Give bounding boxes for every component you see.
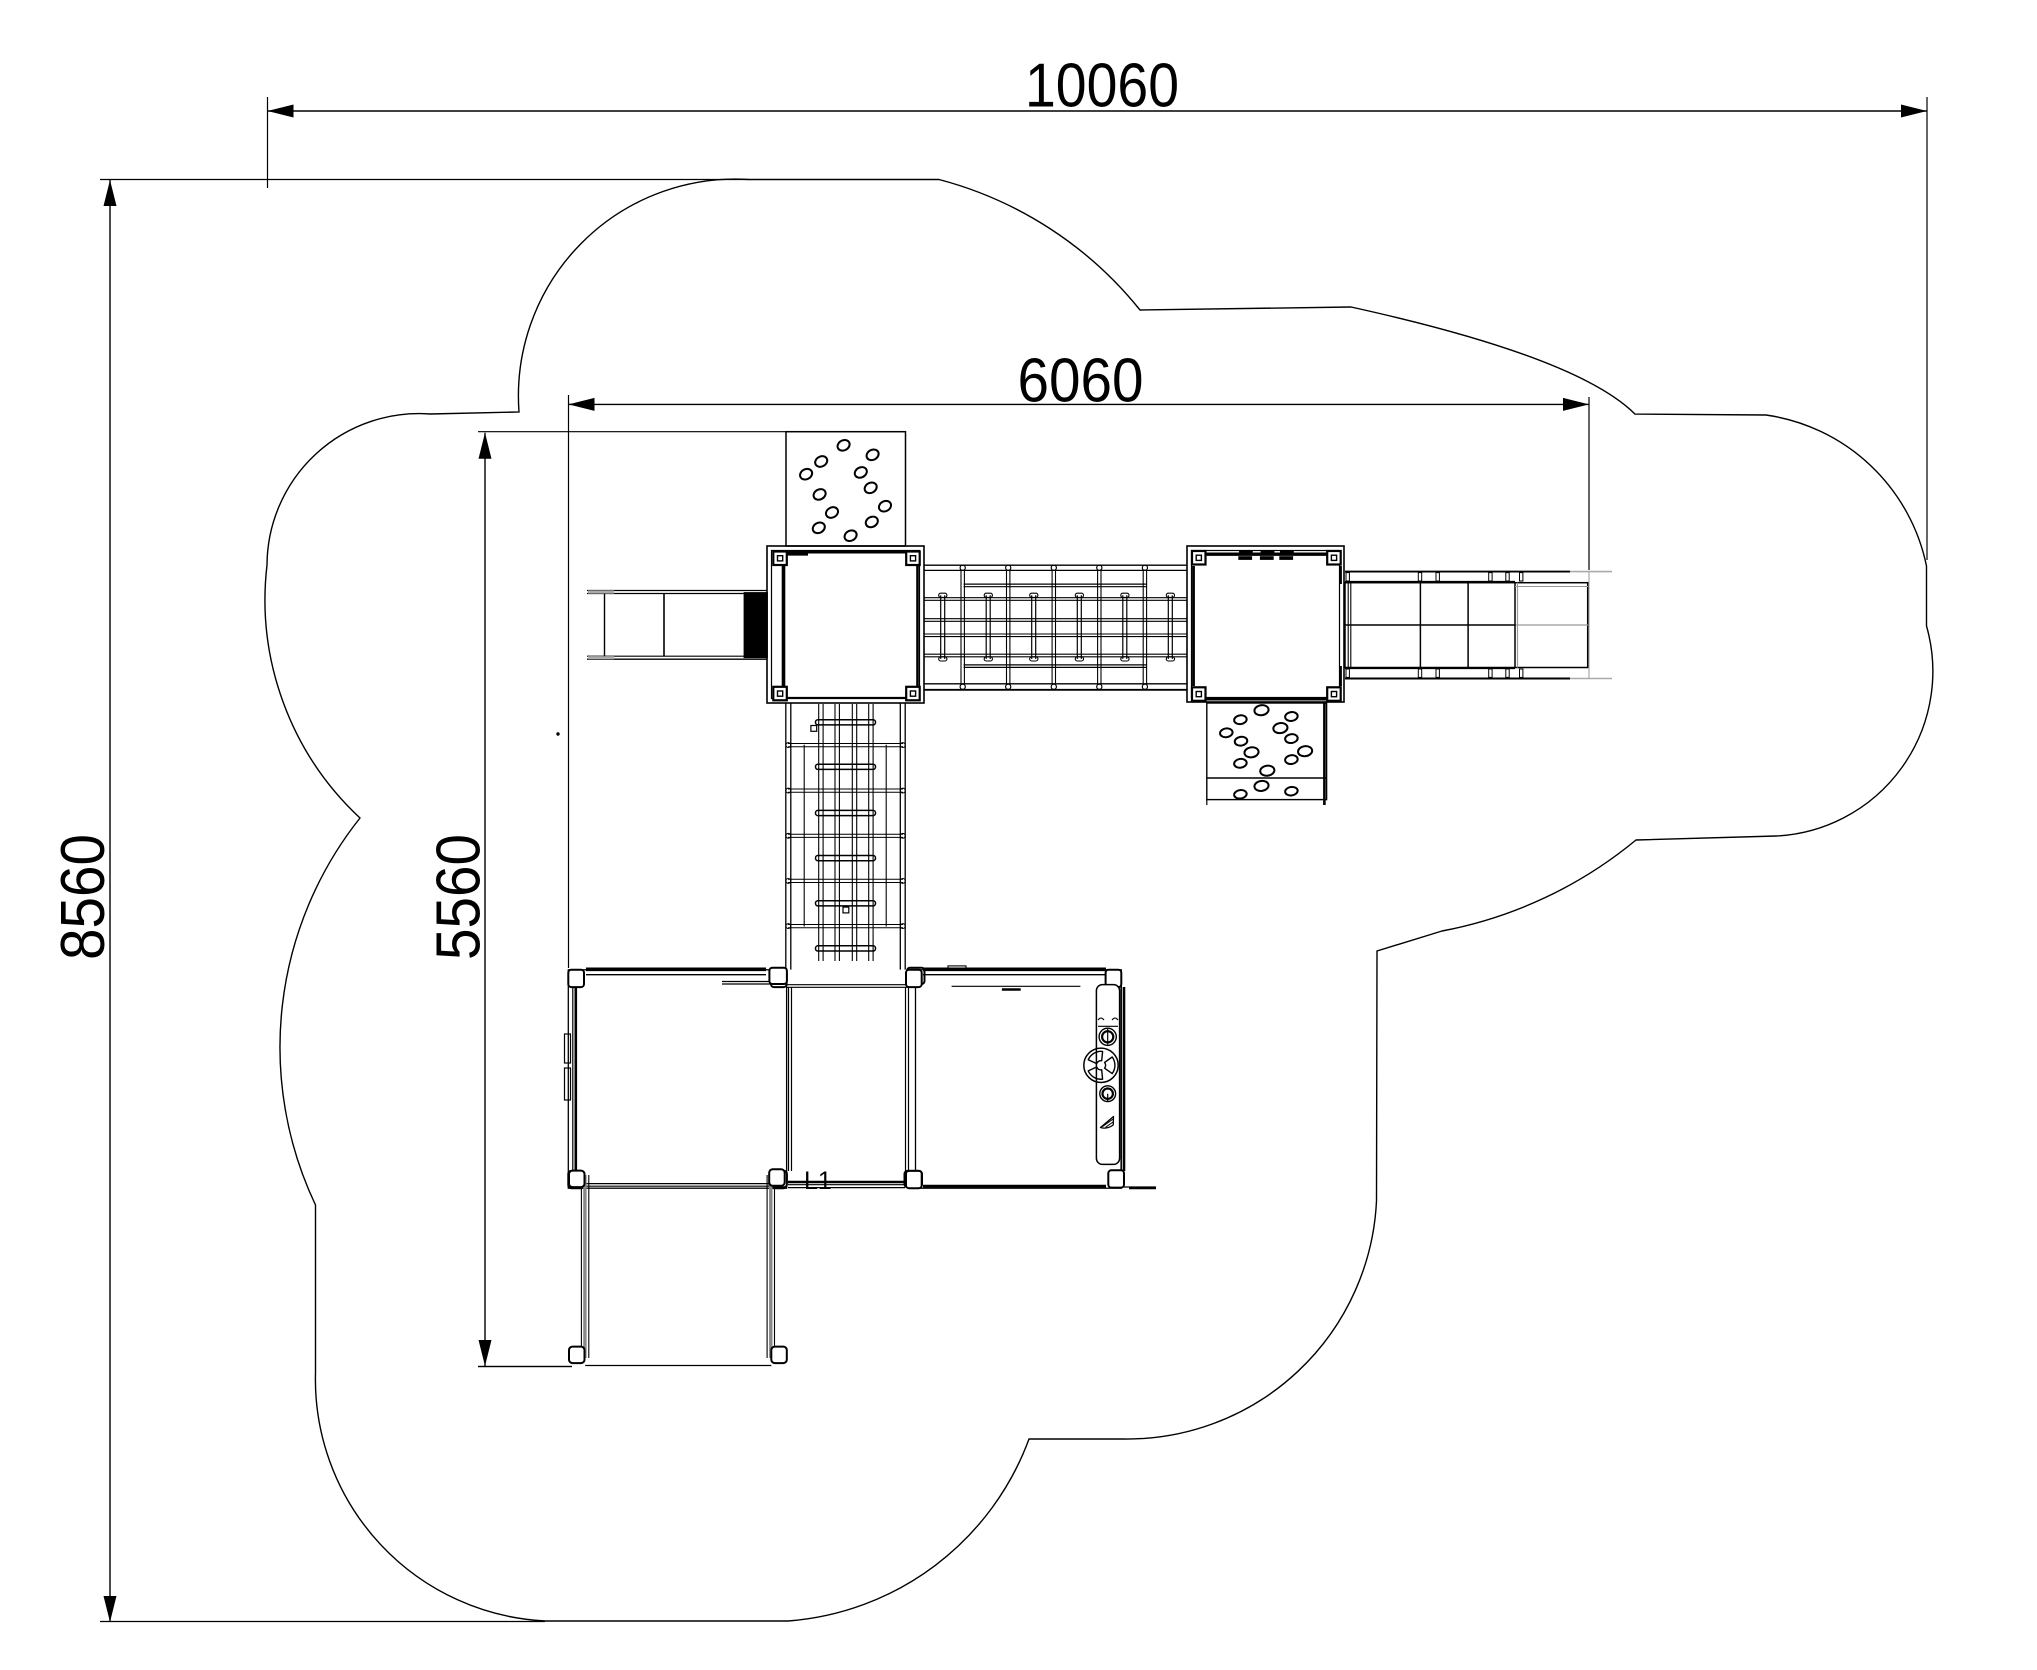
svg-text:5560: 5560 <box>424 834 493 960</box>
svg-text:L1: L1 <box>804 1167 832 1195</box>
svg-text:8560: 8560 <box>49 834 118 960</box>
svg-text:6060: 6060 <box>1018 347 1144 416</box>
svg-text:10060: 10060 <box>1025 52 1179 121</box>
